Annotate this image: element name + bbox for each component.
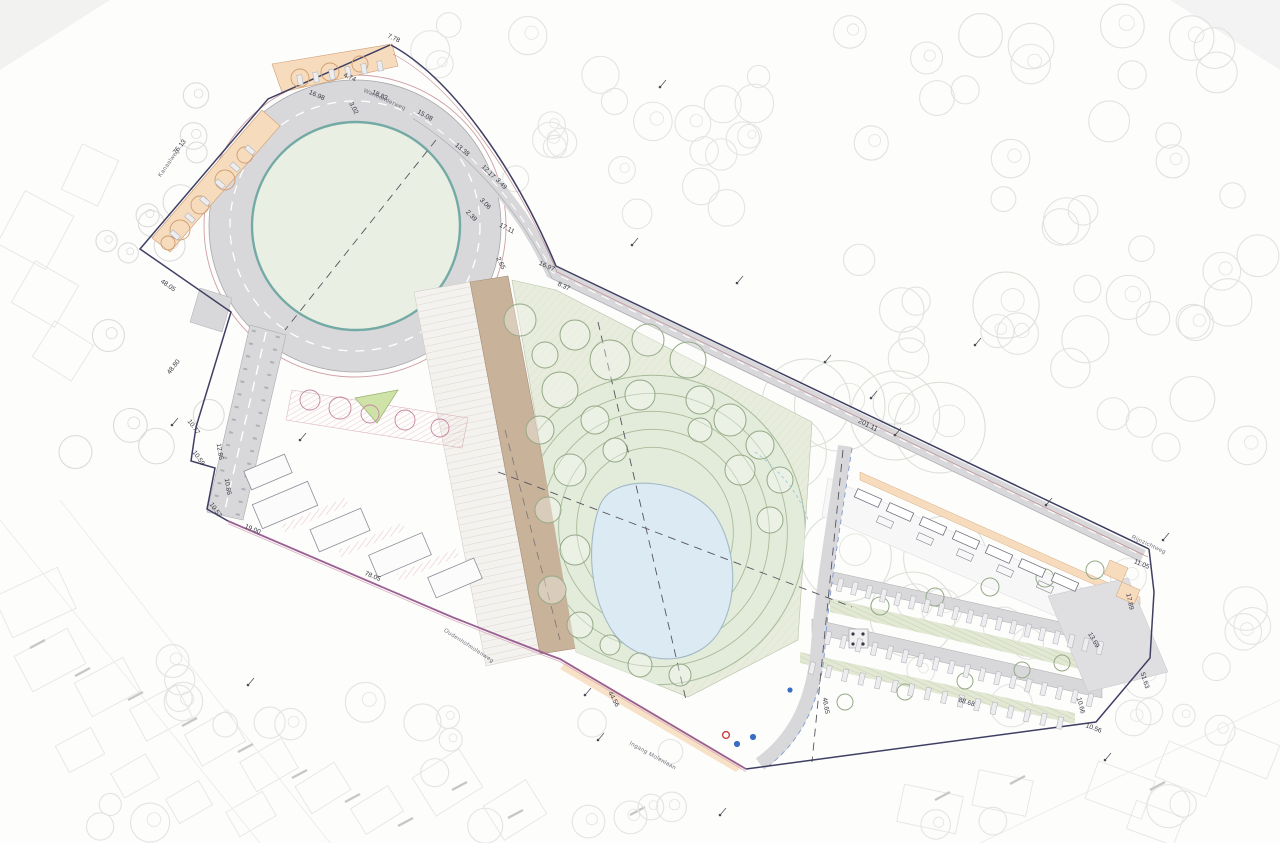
site-plan-svg: 7.784.7416.983.0218.8315.0813.3812.173.4… (0, 0, 1280, 843)
tree-canopy-icon (1203, 653, 1231, 681)
tree-crown-detail (1008, 149, 1021, 162)
tree-canopy-icon (609, 156, 636, 183)
tree-crown-detail (586, 813, 597, 824)
new-tree-icon (669, 664, 691, 686)
tree-crown-detail (449, 734, 457, 742)
tree-crown-detail (127, 248, 134, 255)
driveway-mark (238, 744, 253, 752)
new-tree-icon (746, 431, 774, 459)
survey-point (299, 439, 302, 442)
cadastral-parcel (0, 567, 76, 637)
new-tree-icon (600, 635, 620, 655)
tree-canopy-icon (708, 190, 744, 226)
tree-canopy-icon (1205, 715, 1235, 745)
photo-corner (0, 0, 110, 70)
cadastral-parcel (1220, 727, 1280, 779)
driveway-mark (30, 640, 45, 648)
survey-point (719, 814, 722, 817)
survey-point (974, 344, 977, 347)
tree-crown-detail (362, 692, 376, 706)
tree-crown-detail (525, 26, 538, 39)
tree-canopy-icon (921, 810, 950, 839)
tree-crown-detail (995, 323, 1007, 335)
cadastral-parcel (55, 727, 104, 772)
tree-canopy-icon (682, 168, 719, 205)
street-label: Kanaalweg (157, 148, 180, 178)
tree-canopy-icon (92, 320, 124, 352)
tree-canopy-icon (404, 704, 441, 741)
tree-canopy-icon (99, 793, 121, 815)
cadastral-parcel (1085, 761, 1155, 819)
traffic-sign-blue-icon (749, 733, 756, 740)
tree-canopy-icon (1106, 275, 1150, 319)
cadastral-parcel (111, 754, 160, 798)
tree-canopy-icon (275, 708, 306, 739)
new-tree-icon (632, 324, 664, 356)
survey-point (1104, 759, 1107, 762)
tree-canopy-icon (873, 382, 915, 424)
survey-point (824, 361, 827, 364)
tree-canopy-icon (1170, 791, 1196, 817)
tree-crown-detail (194, 89, 203, 98)
tree-canopy-icon (1169, 16, 1214, 61)
tree-canopy-icon (1051, 348, 1090, 387)
tree-canopy-icon (439, 728, 462, 751)
tree-canopy-icon (118, 243, 138, 263)
tree-canopy-icon (1170, 377, 1215, 422)
tree-crown-detail (1245, 436, 1259, 450)
street-tree-icon (837, 694, 853, 710)
tree-canopy-icon (622, 199, 652, 229)
tree-canopy-icon (1194, 28, 1235, 69)
new-tree-icon (560, 320, 590, 350)
survey-flag (1164, 533, 1169, 539)
dimension-label: 11.05 (1133, 558, 1151, 571)
tree-crown-detail (933, 405, 965, 437)
survey-point (171, 424, 174, 427)
new-tree-icon (526, 416, 554, 444)
bollard-dot (861, 642, 864, 645)
tree-canopy-icon (421, 759, 449, 787)
tree-canopy-icon (96, 230, 117, 251)
tree-canopy-icon (1115, 700, 1151, 736)
driveway-mark (508, 810, 523, 818)
survey-point (736, 282, 739, 285)
cadastral-parcel (166, 780, 213, 823)
cadastral-line (60, 500, 330, 843)
tree-canopy-icon (844, 244, 875, 275)
tree-crown-detail (147, 813, 161, 827)
tree-canopy-icon (634, 102, 672, 140)
survey-flag (633, 238, 638, 244)
tree-canopy-icon (1225, 614, 1262, 651)
cadastral-parcel (412, 749, 482, 816)
survey-flag (721, 808, 726, 814)
tree-canopy-icon (899, 327, 925, 353)
tree-canopy-icon (131, 803, 170, 842)
dimension-label: 10.77 (186, 418, 201, 436)
tree-canopy-icon (1156, 145, 1189, 178)
survey-flag (173, 418, 178, 424)
survey-point (1162, 539, 1165, 542)
driveway-mark (345, 794, 360, 802)
cadastral-parcel (32, 321, 93, 381)
tree-canopy-icon (880, 288, 924, 332)
driveway-mark (398, 818, 413, 826)
tree-canopy-icon (991, 187, 1016, 212)
tree-canopy-icon (1204, 279, 1251, 326)
tree-canopy-icon (578, 709, 606, 737)
survey-flag (661, 80, 666, 86)
tree-canopy-icon (139, 428, 175, 464)
tree-canopy-icon (920, 81, 955, 116)
survey-flag (976, 338, 981, 344)
new-tree-icon (560, 535, 590, 565)
cadastral-parcel (350, 786, 403, 835)
bollard-dot (861, 632, 864, 635)
cadastral-parcel (1155, 741, 1220, 797)
new-tree-icon (686, 386, 714, 414)
new-tree-icon (603, 438, 627, 462)
survey-point (631, 244, 634, 247)
tree-crown-detail (650, 112, 663, 125)
site-plan-canvas: 7.784.7416.983.0218.8315.0813.3812.173.4… (0, 0, 1280, 843)
tree-crown-detail (620, 163, 629, 172)
tree-canopy-icon (601, 88, 627, 114)
tree-canopy-icon (1097, 398, 1129, 430)
tree-canopy-icon (1152, 433, 1180, 461)
bollard-dot (851, 642, 854, 645)
tree-canopy-icon (834, 16, 866, 48)
tree-canopy-icon (113, 408, 147, 442)
driveway-mark (1010, 776, 1025, 784)
tree-canopy-icon (136, 204, 159, 227)
parking-stall (1086, 693, 1094, 707)
bollard-dot (851, 632, 854, 635)
tree-crown-detail (170, 653, 181, 664)
tree-crown-detail (1119, 15, 1134, 30)
traffic-sign-blue-icon (733, 740, 740, 747)
tree-crown-detail (628, 809, 639, 820)
design-plan-base (140, 44, 1168, 772)
tree-crown-detail (106, 328, 117, 339)
survey-flag (826, 355, 831, 361)
tree-canopy-icon (1126, 407, 1156, 437)
tree-canopy-icon (1203, 252, 1241, 290)
dimension-label: 7.78 (386, 33, 401, 45)
dimension-label: 48.05 (159, 278, 177, 293)
dimension-label: 10.56 (1085, 722, 1103, 734)
tree-crown-detail (839, 534, 871, 566)
tree-canopy-icon (193, 399, 224, 430)
survey-point (597, 739, 600, 742)
cadastral-parcel (897, 784, 964, 834)
driveway-mark (935, 792, 950, 800)
tree-canopy-icon (213, 712, 238, 737)
new-tree-icon (567, 612, 593, 638)
tree-canopy-icon (973, 272, 1039, 338)
tree-canopy-icon (538, 112, 565, 139)
tree-canopy-icon (951, 76, 979, 104)
new-tree-icon (670, 342, 706, 378)
tree-crown-detail (869, 134, 881, 146)
survey-point (659, 86, 662, 89)
driveway-mark (1150, 782, 1165, 790)
new-tree-icon (767, 467, 793, 493)
tree-crown-detail (192, 129, 201, 138)
tree-crown-detail (1219, 262, 1232, 275)
tree-canopy-icon (86, 813, 113, 840)
tree-canopy-icon (436, 13, 461, 38)
new-tree-icon (628, 653, 652, 677)
tree-canopy-icon (59, 436, 92, 469)
tree-canopy-icon (1228, 426, 1267, 465)
survey-flag (586, 688, 591, 694)
tree-crown-detail (924, 50, 935, 61)
survey-flag (738, 276, 743, 282)
tree-canopy-icon (509, 16, 547, 54)
tree-crown-detail (847, 24, 858, 35)
tree-canopy-icon (1173, 704, 1195, 726)
tree-canopy-icon (1220, 183, 1245, 208)
tree-canopy-icon (738, 124, 762, 148)
tree-canopy-icon (614, 801, 647, 834)
cadastral-parcel (226, 791, 276, 836)
tree-canopy-icon (186, 142, 207, 163)
tree-canopy-icon (1100, 4, 1144, 48)
survey-point (870, 397, 873, 400)
tree-canopy-icon (166, 685, 192, 711)
tree-canopy-icon (979, 807, 1007, 835)
tree-canopy-icon (345, 682, 385, 722)
tree-canopy-icon (1068, 195, 1098, 225)
tree-canopy-icon (572, 805, 605, 838)
survey-flag (1106, 753, 1111, 759)
cadastral-parcel (74, 657, 140, 716)
tree-canopy-icon (911, 42, 943, 74)
tree-crown-detail (288, 716, 299, 727)
tree-canopy-icon (164, 682, 202, 720)
tree-crown-detail (1218, 723, 1229, 734)
tree-canopy-icon (991, 139, 1030, 178)
dimension-label: 12.86 (215, 443, 225, 461)
dimension-label: 48.80 (166, 358, 182, 376)
tree-crown-detail (1028, 54, 1042, 68)
traffic-sign-red-icon (723, 732, 730, 739)
driveway-mark (292, 770, 307, 778)
cadastral-parcel (11, 261, 78, 328)
cadastral-parcel (0, 191, 74, 270)
tree-canopy-icon (706, 139, 737, 170)
street-tree-icon (1086, 561, 1104, 579)
survey-point (894, 434, 897, 437)
dimension-label: 46.65 (821, 697, 831, 715)
tree-crown-detail (128, 417, 140, 429)
new-tree-icon (714, 404, 746, 436)
survey-flag (249, 678, 254, 684)
tree-canopy-icon (854, 126, 888, 160)
cadastral-parcel (1126, 800, 1183, 843)
tree-crown-detail (1001, 289, 1024, 312)
driveway-mark (452, 782, 467, 790)
new-tree-icon (535, 497, 561, 523)
tree-crown-detail (690, 114, 703, 127)
tree-crown-detail (1170, 153, 1182, 165)
tree-crown-detail (1182, 710, 1190, 718)
tree-canopy-icon (1044, 198, 1091, 245)
tree-canopy-icon (1237, 235, 1279, 277)
new-tree-icon (581, 406, 609, 434)
tree-canopy-icon (1008, 23, 1054, 69)
survey-point (247, 684, 250, 687)
survey-point (584, 694, 587, 697)
new-tree-icon (590, 340, 630, 380)
new-tree-icon (532, 342, 558, 368)
tree-canopy-icon (902, 287, 930, 315)
tree-canopy-icon (657, 792, 687, 822)
tree-canopy-icon (675, 105, 711, 141)
new-tree-icon (542, 372, 578, 408)
tree-canopy-icon (468, 808, 503, 843)
dimension-label: 10.66 (1075, 697, 1086, 715)
new-tree-icon (757, 507, 783, 533)
tree-crown-detail (748, 130, 756, 138)
new-tree-icon (504, 304, 536, 336)
survey-point (1045, 504, 1048, 507)
tree-canopy-icon (1118, 61, 1146, 89)
tree-canopy-icon (156, 645, 189, 678)
new-tree-icon (725, 455, 755, 485)
cadastral-parcel (61, 144, 118, 206)
tree-canopy-icon (1129, 236, 1155, 262)
tree-canopy-icon (1156, 123, 1181, 148)
new-tree-icon (625, 380, 655, 410)
tree-crown-detail (669, 800, 679, 810)
tree-crown-detail (105, 236, 112, 243)
new-tree-icon (554, 454, 586, 486)
tree-canopy-icon (1089, 101, 1130, 142)
new-tree-icon (688, 418, 712, 442)
tree-crown-detail (933, 817, 943, 827)
tree-canopy-icon (959, 14, 1003, 58)
tree-canopy-icon (1042, 209, 1078, 245)
street-label: Ingang Molenlaan (628, 741, 677, 772)
cadastral-parcel (295, 762, 351, 814)
driveway-mark (75, 668, 90, 676)
tree-crown-detail (446, 711, 454, 719)
tree-crown-detail (1193, 314, 1205, 326)
traffic-sign-blue-icon (787, 687, 793, 693)
tree-canopy-icon (1136, 302, 1169, 335)
tree-canopy-icon (1074, 275, 1101, 302)
tree-canopy-icon (183, 83, 208, 108)
existing-building (1048, 578, 1168, 692)
tree-crown-detail (1125, 286, 1140, 301)
new-tree-icon (538, 576, 566, 604)
survey-flag (301, 433, 306, 439)
